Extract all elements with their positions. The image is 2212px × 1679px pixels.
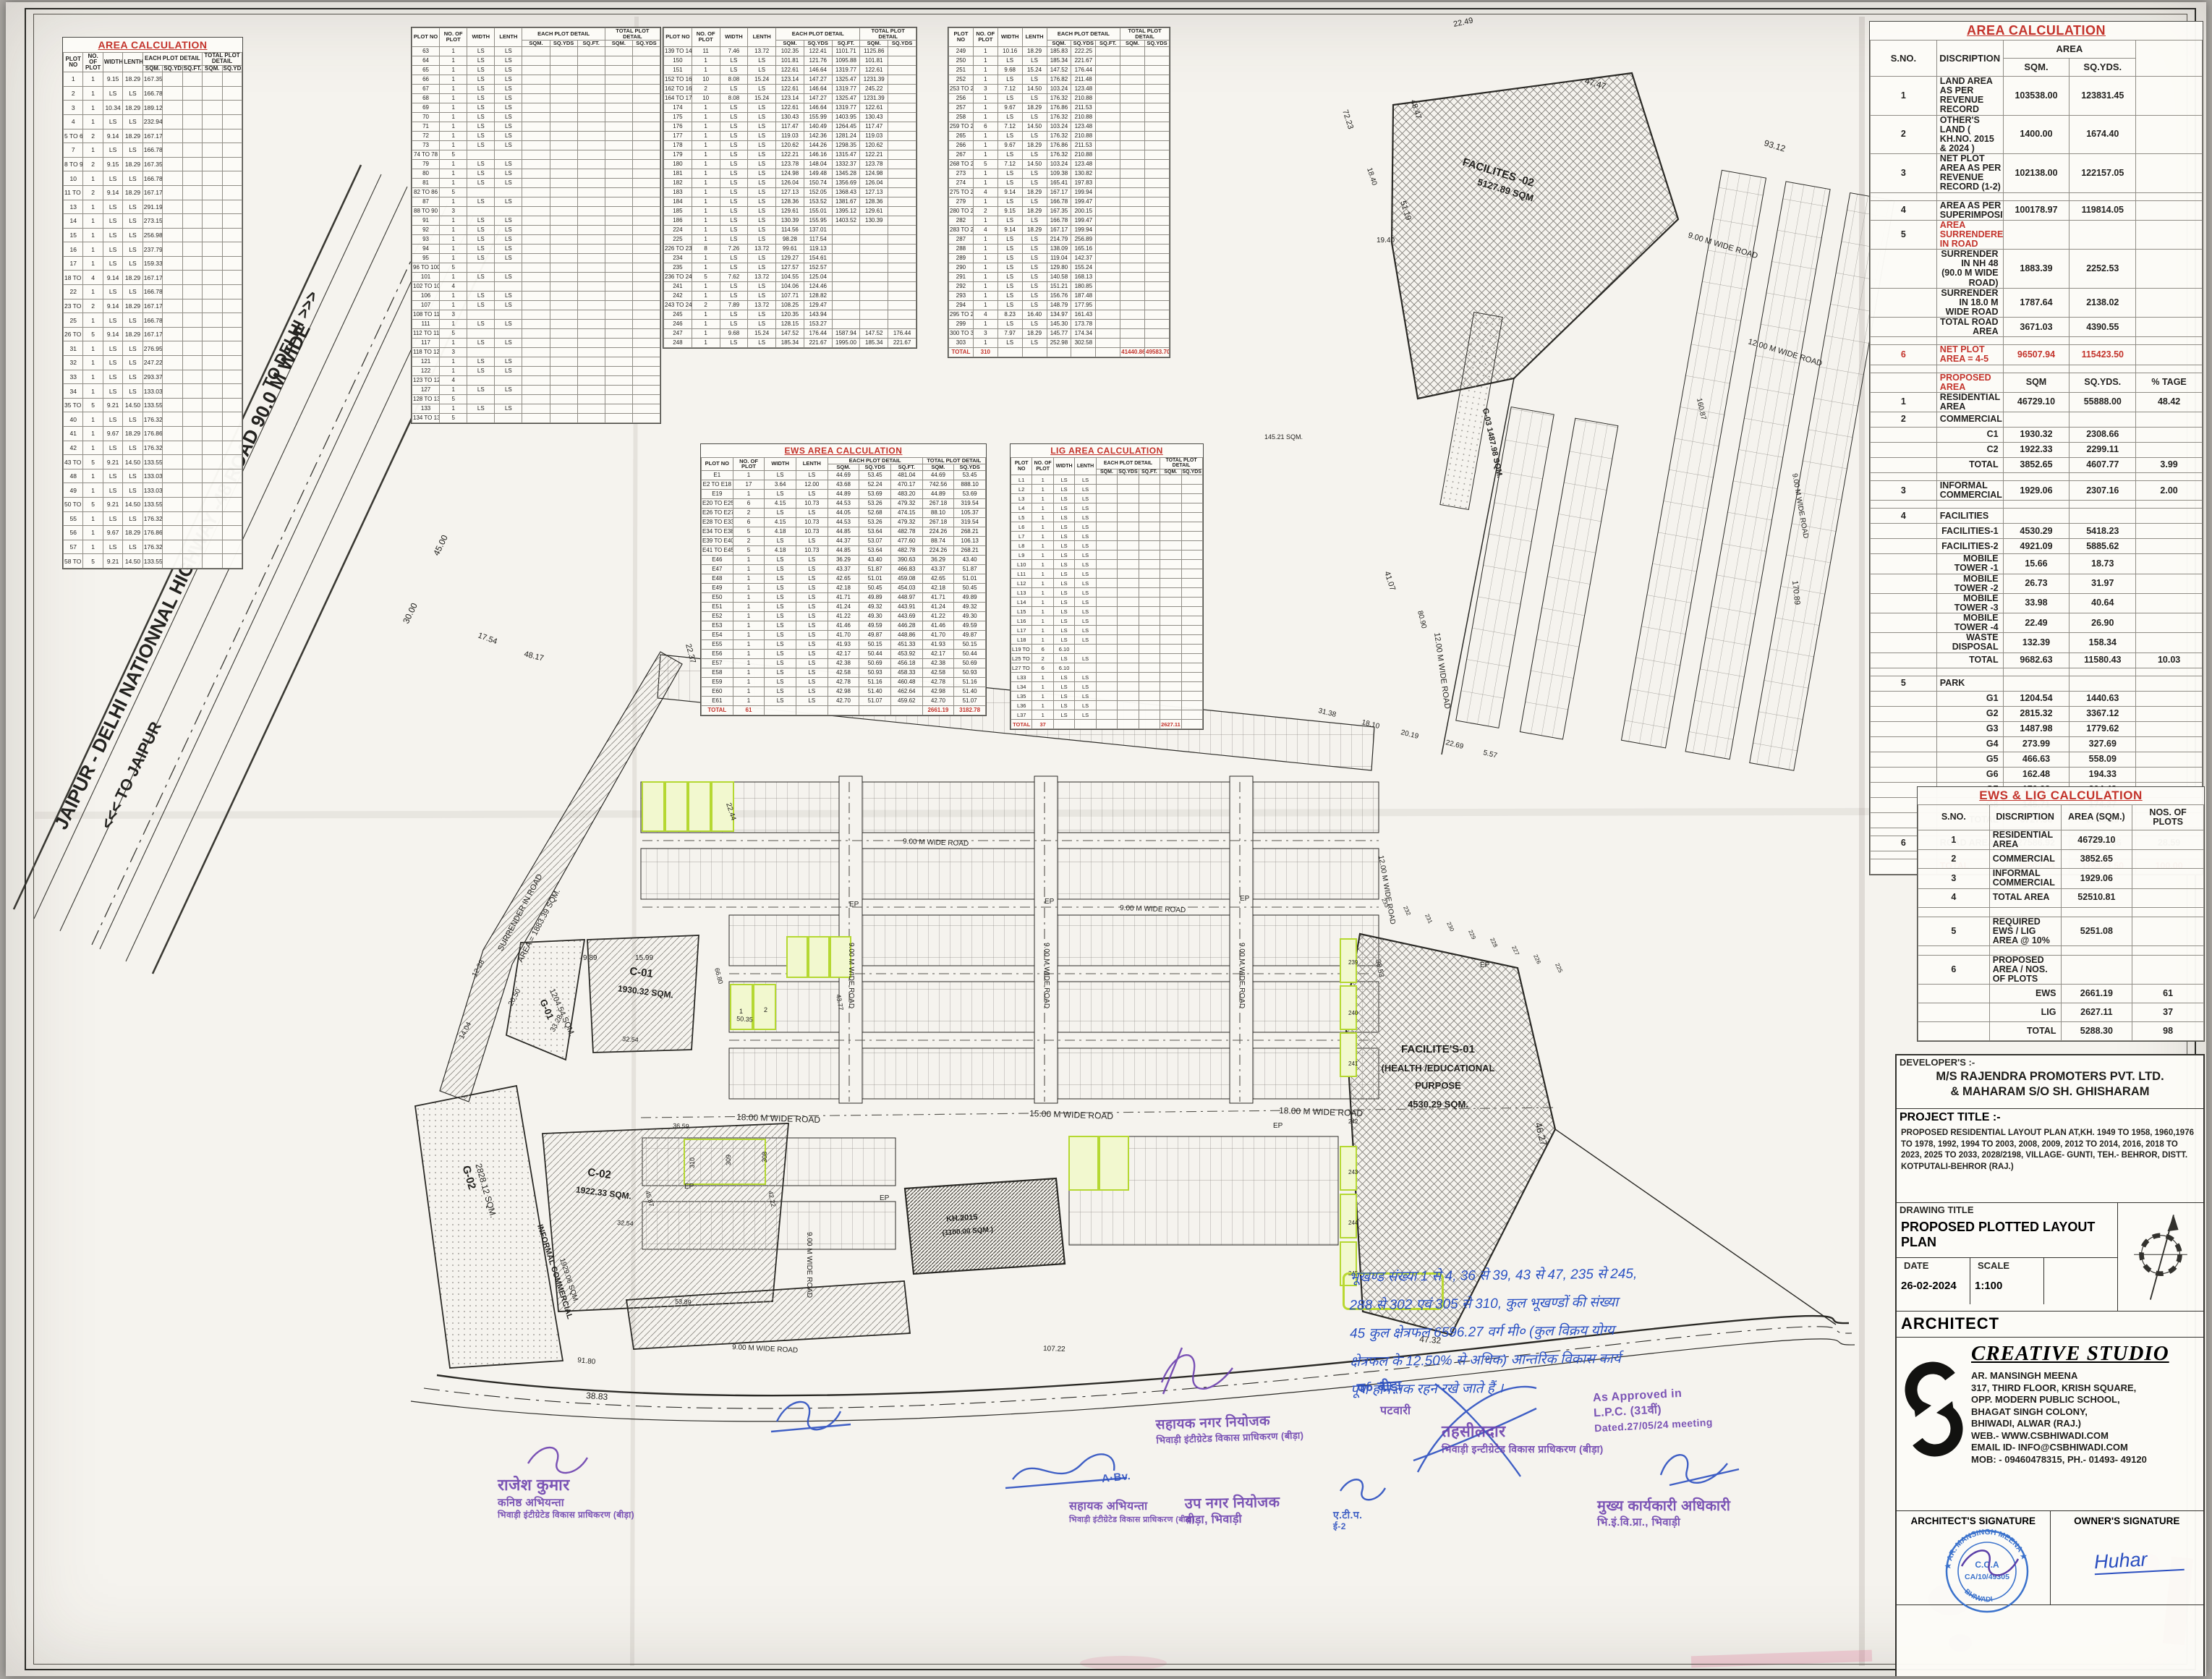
cell [577, 197, 605, 206]
cell: 2661.19 [2061, 985, 2132, 1003]
plan-label: EP [1273, 1122, 1283, 1130]
cell: EWS [1989, 985, 2061, 1003]
cell [1096, 579, 1117, 588]
cell [550, 272, 577, 281]
cell [550, 385, 577, 394]
cell: 1 [1032, 503, 1053, 513]
cell [182, 256, 202, 271]
col-header: WIDTH [997, 28, 1022, 47]
scale-label: SCALE [1975, 1259, 2012, 1272]
cell [222, 398, 242, 412]
cell: L27 TO L32 [1011, 663, 1032, 673]
plan-label: 32.54 [622, 1035, 639, 1044]
cell [1118, 522, 1139, 532]
cell [1871, 318, 1937, 337]
cell: 31 [64, 341, 83, 356]
cell: 1 [1032, 485, 1053, 494]
plan-label: 80.90 [1416, 610, 1428, 629]
cell: 124.46 [804, 281, 832, 291]
cell [522, 413, 550, 422]
cell [1139, 494, 1160, 503]
cell: 186 [664, 216, 692, 225]
cell: TOTAL [949, 347, 974, 357]
cell [1096, 663, 1117, 673]
cell: LS [1075, 551, 1096, 560]
cell [2136, 192, 2203, 200]
cell [1096, 197, 1120, 206]
cell: 3 [440, 310, 467, 319]
cell: LS [720, 291, 748, 300]
cell: 91 [412, 216, 440, 225]
cell [222, 101, 242, 115]
cell: 37 [1032, 720, 1053, 729]
cell: LS [720, 225, 748, 234]
cell [1139, 607, 1160, 616]
cell [222, 256, 242, 271]
cell [1871, 574, 1937, 593]
cell: 92 [412, 225, 440, 234]
plan-label: 9.89 [583, 954, 597, 962]
cell: 128.36 [860, 197, 888, 206]
cell: 51.87 [859, 564, 891, 574]
cell: 42.17 [828, 649, 859, 658]
cell: 100178.97 [2003, 200, 2070, 220]
cell: 291 [949, 272, 974, 281]
cell: L8 [1011, 541, 1032, 551]
cell [860, 291, 888, 300]
cell: 50.69 [954, 658, 986, 668]
cell: 167.17 [142, 299, 162, 313]
plan-label: FACILITE'S-01 [1401, 1043, 1475, 1055]
cell: 1929.06 [2061, 869, 2132, 888]
plan-label: 240 [1348, 1010, 1358, 1016]
cell: 287 [949, 234, 974, 244]
text-line: EMAIL ID- INFO@CSBHIWADI.COM [1971, 1442, 2202, 1454]
cell: LS [467, 178, 495, 187]
cell: 1 [733, 649, 765, 658]
cell: SQM [2003, 373, 2070, 392]
cell: 9.67 [997, 140, 1022, 150]
cell [1096, 84, 1120, 93]
cell: LS [720, 56, 748, 65]
cell: 1 [1032, 569, 1053, 579]
cell [860, 263, 888, 272]
cell: 1 [1032, 579, 1053, 588]
cell: 50.44 [954, 649, 986, 658]
cell: LS [720, 281, 748, 291]
cell: 1 [692, 122, 720, 131]
plot-table-4: PLOT NONO. OF PLOTWIDTHLENTHEACH PLOT DE… [948, 27, 1170, 358]
cell [1096, 701, 1117, 710]
cell: 1 [733, 630, 765, 639]
cell [2070, 473, 2136, 481]
cell: 1 [440, 253, 467, 263]
cell: 1 [692, 65, 720, 75]
col-header: SQ.YDS [954, 464, 986, 470]
plan-label: 309 [725, 1155, 732, 1165]
plan-label: EP [684, 1183, 694, 1191]
north-arrow-cell [2118, 1203, 2203, 1311]
cell [467, 375, 495, 385]
cell: LS [1053, 522, 1074, 532]
cell [1096, 692, 1117, 701]
cell [888, 197, 916, 206]
col-header: TOTAL PLOT DETAIL [605, 28, 660, 41]
cell [203, 441, 222, 455]
plan-label: 19.40 [1377, 237, 1395, 245]
cell [1120, 328, 1145, 338]
cell [1918, 985, 1990, 1003]
cell: 13 [64, 200, 83, 214]
cell [1120, 319, 1145, 328]
cell [605, 234, 632, 244]
cell: 288 [949, 244, 974, 253]
cell: E52 [702, 611, 733, 621]
cell: 107 [412, 300, 440, 310]
cell: 4921.09 [2003, 539, 2070, 554]
cell: 185 [664, 206, 692, 216]
col-header: SQM. [828, 464, 859, 470]
cell: LS [467, 244, 495, 253]
cell: LS [720, 319, 748, 328]
cell [203, 129, 222, 143]
cell [2070, 676, 2136, 691]
cell: 5 [733, 527, 765, 536]
cell [1139, 569, 1160, 579]
cell: LS [1022, 300, 1047, 310]
cell [2132, 850, 2204, 869]
cell: 1 [692, 159, 720, 169]
cell: 1368.43 [832, 187, 860, 197]
cell: 459.62 [890, 696, 922, 705]
plan-label: 9.00 M WIDE ROAD [1238, 943, 1246, 1008]
cell: 98.28 [776, 234, 804, 244]
cell [1871, 613, 1937, 633]
cell: LS [123, 228, 142, 242]
cell: L36 [1011, 701, 1032, 710]
ews_lig_calc-grid: EWS & LIG CALCULATIONS.NO.DISCRIPTIONARE… [1918, 787, 2204, 1041]
cell [522, 357, 550, 366]
cell: 17 [733, 480, 765, 489]
cell [577, 281, 605, 291]
cell: 117.47 [860, 122, 888, 131]
cell [1096, 513, 1117, 522]
cell: LS [1075, 654, 1096, 663]
cell: 279 [949, 197, 974, 206]
cell: 1922.33 [2003, 443, 2070, 458]
cell: 123 TO 126 [412, 375, 440, 385]
cell [222, 129, 242, 143]
cell [888, 150, 916, 159]
cell: 1395.12 [832, 206, 860, 216]
plan-label: 22.69 [1445, 739, 1464, 751]
cell [203, 483, 222, 498]
cell [550, 56, 577, 65]
cell [222, 384, 242, 399]
cell [522, 300, 550, 310]
cell: 1 [973, 103, 997, 112]
cell: LS [1053, 654, 1074, 663]
cell: 167.17 [142, 185, 162, 200]
cell: 26.90 [2070, 613, 2136, 633]
cell [182, 412, 202, 427]
cell: L2 [1011, 485, 1032, 494]
cell [1118, 710, 1139, 720]
cell [860, 319, 888, 328]
left_tables.t3-grid: PLOT NONO. OF PLOTWIDTHLENTHEACH PLOT DE… [663, 27, 916, 348]
cell [2136, 443, 2203, 458]
cell [1118, 475, 1139, 485]
cell: 96507.94 [2003, 345, 2070, 365]
cell: 453.92 [890, 649, 922, 658]
plan-label: 36.59 [673, 1122, 689, 1130]
cell: 13.72 [748, 244, 776, 253]
cell: 477.60 [890, 536, 922, 545]
cell: 51.40 [954, 687, 986, 696]
cell: 42.98 [922, 687, 954, 696]
cell [550, 112, 577, 122]
cell [1145, 206, 1170, 216]
cell: 1 [83, 256, 103, 271]
cell [182, 384, 202, 399]
cell [1118, 645, 1139, 654]
cell: 147.52 [1047, 65, 1071, 75]
col-header: EACH PLOT DETAIL [142, 53, 202, 66]
cell: 104.06 [776, 281, 804, 291]
cell: LS [495, 93, 522, 103]
cell: LS [123, 285, 142, 299]
cell: LS [765, 611, 796, 621]
plan-label: EP [1045, 898, 1055, 906]
cell [888, 75, 916, 84]
cell [522, 319, 550, 328]
cell: 41.70 [922, 630, 954, 639]
cell: LS [1075, 701, 1096, 710]
cell: 164 TO 173 [664, 93, 692, 103]
cell: 122.21 [776, 150, 804, 159]
cell: 7.12 [997, 84, 1022, 93]
plan-label: 227 [1510, 945, 1520, 956]
cell: 250 [949, 56, 974, 65]
col-header: NO. OF PLOT [83, 53, 103, 72]
cell: LS [467, 122, 495, 131]
cell [1118, 607, 1139, 616]
cell: 176.32 [142, 511, 162, 526]
cell: TOTAL ROAD AREA [1936, 318, 2003, 337]
cell: 44.53 [828, 517, 859, 527]
col-header: TOTAL PLOT DETAIL [922, 458, 985, 464]
cell: 12.00 [796, 480, 828, 489]
cell [1181, 598, 1203, 607]
cell [1181, 560, 1203, 569]
cell: 482.78 [890, 527, 922, 536]
cell: 256 [949, 93, 974, 103]
cell [1871, 524, 1937, 539]
cell: 41.71 [828, 592, 859, 602]
cell: 52510.81 [2061, 888, 2132, 907]
cell: 53.69 [859, 489, 891, 498]
cell: LS [1075, 560, 1096, 569]
cell [2136, 318, 2203, 337]
cell [577, 385, 605, 394]
cell [1096, 616, 1117, 626]
creative-studio-logo [1900, 1358, 1968, 1466]
cell: 155.01 [804, 206, 832, 216]
cell: 3.64 [765, 480, 796, 489]
cell: 185.83 [1047, 46, 1071, 56]
cell [1118, 503, 1139, 513]
cell [182, 285, 202, 299]
cell: 123831.45 [2070, 77, 2136, 116]
cell [577, 366, 605, 375]
cell: LS [1075, 485, 1096, 494]
cell: 155.99 [804, 112, 832, 122]
cell: LS [103, 469, 122, 483]
cell: 41.93 [922, 639, 954, 649]
cell: LS [1053, 569, 1074, 579]
cell [522, 328, 550, 338]
cell [577, 206, 605, 216]
cell: 44.85 [828, 545, 859, 555]
cell [832, 244, 860, 253]
cell: 6.10 [1053, 645, 1074, 654]
cell [1139, 579, 1160, 588]
cell: 245.22 [860, 84, 888, 93]
cell: 65 [412, 65, 440, 75]
cell [222, 483, 242, 498]
cell [605, 84, 632, 93]
cell: LS [467, 159, 495, 169]
cell [1096, 598, 1117, 607]
cell: 103.24 [1047, 84, 1071, 93]
cell: 1 [83, 114, 103, 129]
cell: 109.38 [1047, 169, 1071, 178]
cell: LS [748, 216, 776, 225]
cell: 1 [733, 602, 765, 611]
cell: LS [1022, 169, 1047, 178]
cell: 44.53 [828, 498, 859, 508]
cell: 1 [1032, 560, 1053, 569]
cell: 128.36 [776, 197, 804, 206]
cell [1989, 907, 2061, 917]
plan-label: 66.80 [713, 967, 724, 985]
cell [182, 185, 202, 200]
cell [522, 140, 550, 150]
plan-label: 145.21 SQM. [1264, 433, 1303, 441]
cell [860, 225, 888, 234]
cell: 140.49 [804, 122, 832, 131]
col-header: NO. OF PLOT [733, 458, 765, 471]
cell: 15.24 [748, 93, 776, 103]
cell: 4 [83, 271, 103, 285]
cell [495, 150, 522, 159]
cell: 43 TO 47 [64, 455, 83, 469]
cell [1120, 46, 1145, 56]
cell: E26 TO E27 [702, 508, 733, 517]
cell: 50.93 [954, 668, 986, 677]
cell: 1332.37 [832, 159, 860, 169]
cell: 290 [949, 263, 974, 272]
cell [605, 272, 632, 281]
cell [467, 413, 495, 422]
cell: LS [495, 84, 522, 93]
cell [2070, 337, 2136, 345]
cell: 1 [440, 56, 467, 65]
cell: 1929.06 [2003, 481, 2070, 501]
cell: 140.58 [1047, 272, 1071, 281]
cell: 1 [83, 101, 103, 115]
cell: 466.83 [890, 564, 922, 574]
cell: 3 [440, 347, 467, 357]
cell [2136, 676, 2203, 691]
cell: 292 [949, 281, 974, 291]
cell [522, 178, 550, 187]
cell [2003, 220, 2070, 249]
cell [550, 225, 577, 234]
cell: 120.62 [860, 140, 888, 150]
col-header: AREA (SQM.) [2061, 805, 2132, 830]
cell [2136, 428, 2203, 443]
cell: 293.37 [142, 370, 162, 384]
cell: LS [467, 338, 495, 347]
cell: LS [103, 441, 122, 455]
cell [1160, 663, 1181, 673]
cell [2136, 365, 2203, 373]
cell: 18.29 [123, 427, 142, 441]
cell [632, 46, 660, 56]
cell: 3 [440, 206, 467, 216]
cell: 53.26 [859, 517, 891, 527]
cell: 122.21 [860, 150, 888, 159]
cell: 18.29 [123, 157, 142, 171]
cell [1871, 443, 1937, 458]
cell [1871, 365, 1937, 373]
cell: 106 [412, 291, 440, 300]
col-header: WIDTH [103, 53, 122, 72]
cell: E56 [702, 649, 733, 658]
cell: 51.07 [859, 696, 891, 705]
cell: LS [467, 385, 495, 394]
date-value: 26-02-2024 [1901, 1280, 1965, 1292]
cell: 1 [83, 200, 103, 214]
cell: E47 [702, 564, 733, 574]
cell: LS [765, 489, 796, 498]
cell: 73 [412, 140, 440, 150]
cell: 1 [973, 112, 997, 122]
text-line: BHAGAT SINGH COLONY, [1971, 1406, 2202, 1419]
cell: LS [720, 197, 748, 206]
cell [182, 271, 202, 285]
col-header: S.NO. [1918, 805, 1990, 830]
ews_table-grid: EWS AREA CALCULATIONPLOT NONO. OF PLOTWI… [701, 444, 986, 715]
cell: LS [495, 122, 522, 131]
cell [495, 328, 522, 338]
cell: 1 [440, 338, 467, 347]
cell [182, 299, 202, 313]
cell [1181, 522, 1203, 532]
cell [182, 370, 202, 384]
area-calculation-table: AREA CALCULATIONS.NO.DISCRIPTIONAREASQM.… [1869, 21, 2203, 875]
cell [1145, 150, 1170, 159]
cell [1936, 192, 2003, 200]
cell [888, 206, 916, 216]
cell: 15.66 [2003, 554, 2070, 574]
cell: G2 [1936, 706, 2003, 721]
cell: 9.14 [103, 327, 122, 341]
svg-text:BHIWADI: BHIWADI [1962, 1588, 1993, 1604]
cell: LS [1022, 112, 1047, 122]
cell: LS [123, 356, 142, 370]
